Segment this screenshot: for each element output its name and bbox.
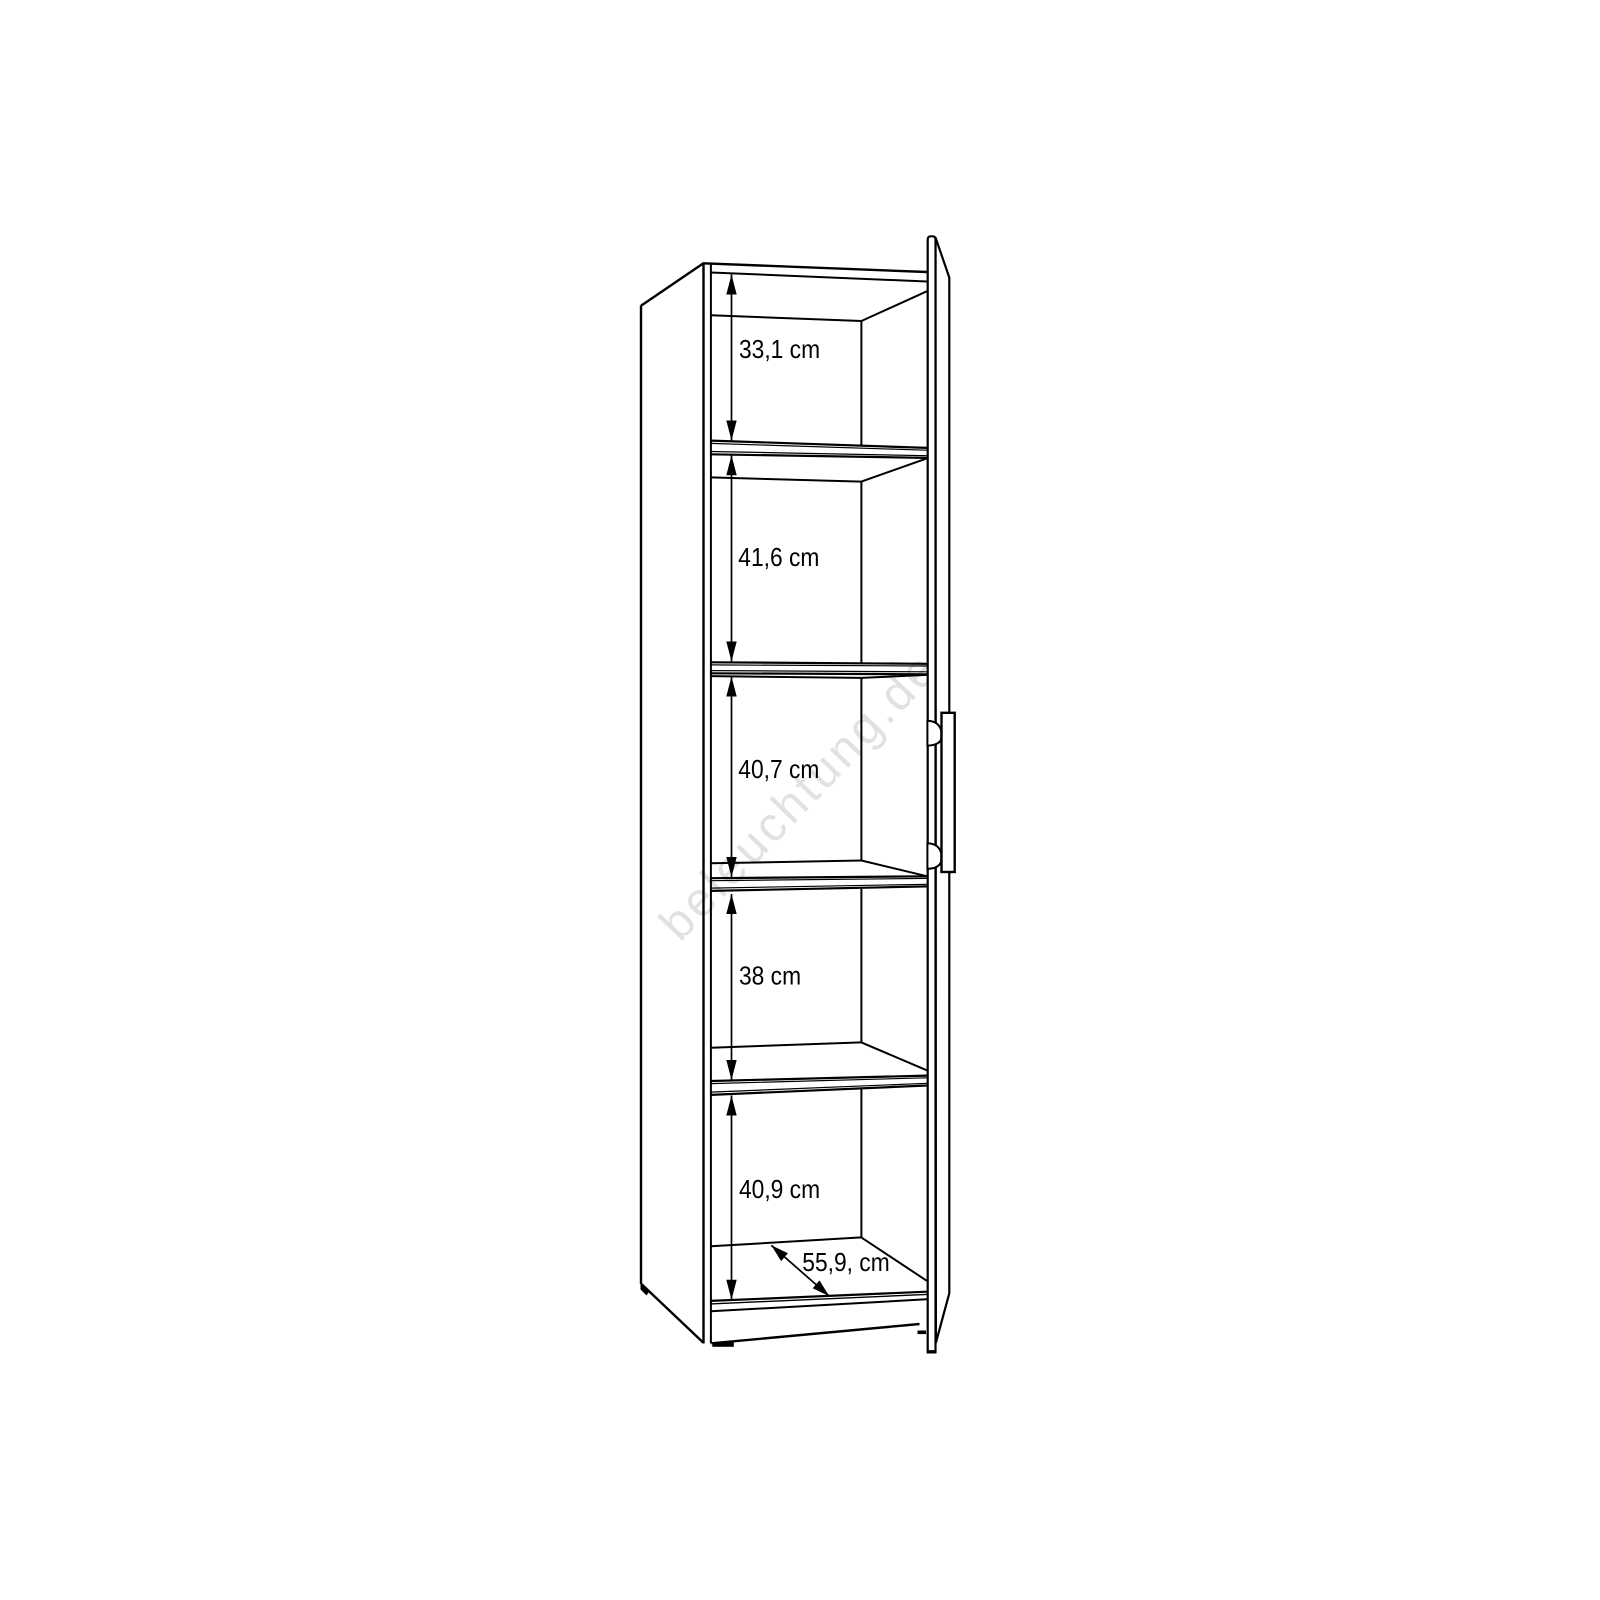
svg-text:40,7 cm: 40,7 cm xyxy=(738,755,819,784)
svg-text:38 cm: 38 cm xyxy=(739,962,801,991)
svg-text:40,9 cm: 40,9 cm xyxy=(739,1175,820,1204)
svg-text:55,9, cm: 55,9, cm xyxy=(802,1249,889,1278)
svg-text:33,1 cm: 33,1 cm xyxy=(739,335,820,364)
svg-text:41,6 cm: 41,6 cm xyxy=(738,544,819,573)
